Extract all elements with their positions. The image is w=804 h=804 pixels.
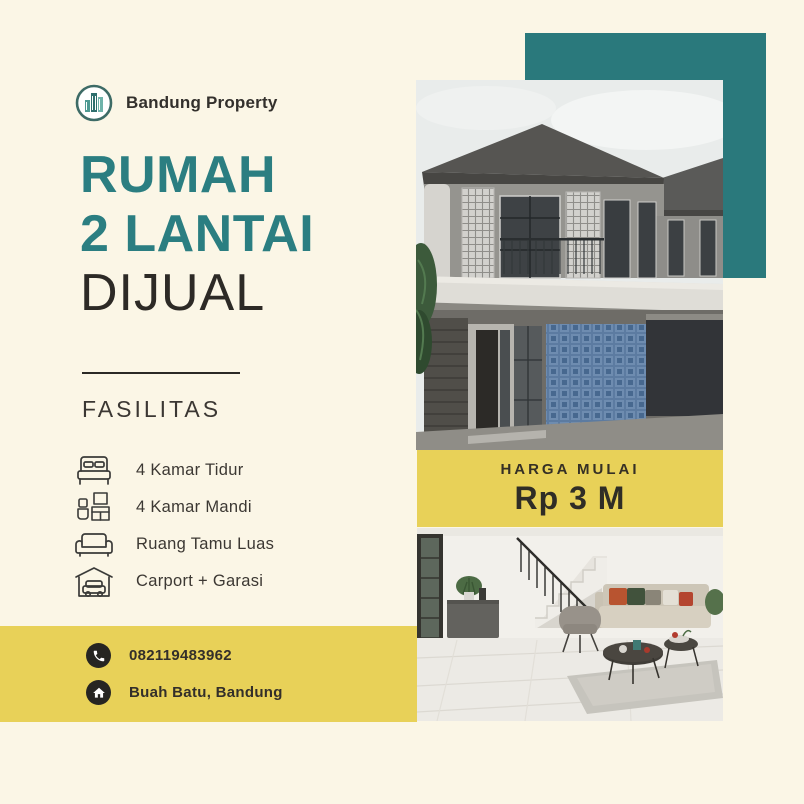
list-item: Ruang Tamu Luas [74, 526, 394, 563]
bathroom-icon [74, 491, 114, 525]
facility-label: Carport + Garasi [136, 572, 263, 591]
phone-number: 082119483962 [129, 647, 232, 664]
headline-line-1: RUMAH [80, 146, 314, 205]
home-icon [86, 680, 111, 705]
divider-line [82, 372, 240, 374]
contact-band: 082119483962 Buah Batu, Bandung [0, 626, 417, 722]
sofa-icon [74, 528, 114, 562]
phone-icon [86, 643, 111, 668]
facilities-list: 4 Kamar Tidur 4 Kamar Mandi [74, 452, 394, 600]
price-badge: HARGA MULAI Rp 3 M [417, 450, 723, 527]
phone-row: 082119483962 [86, 643, 232, 668]
list-item: 4 Kamar Tidur [74, 452, 394, 489]
facility-label: Ruang Tamu Luas [136, 535, 274, 554]
price-value: Rp 3 M [515, 480, 626, 517]
house-exterior-photo [416, 80, 723, 450]
living-room-interior-photo [417, 528, 723, 721]
list-item: Carport + Garasi [74, 563, 394, 600]
bed-icon [74, 454, 114, 488]
brand-name: Bandung Property [126, 93, 278, 113]
interior-illustration [417, 528, 723, 721]
headline-line-3: DIJUAL [80, 264, 314, 323]
location-text: Buah Batu, Bandung [129, 684, 283, 701]
location-row: Buah Batu, Bandung [86, 680, 283, 705]
buildings-logo-icon [75, 84, 113, 122]
house-exterior-illustration [416, 80, 723, 450]
price-label: HARGA MULAI [500, 461, 639, 478]
brand: Bandung Property [75, 84, 278, 122]
facility-label: 4 Kamar Mandi [136, 498, 252, 517]
headline-line-2: 2 LANTAI [80, 205, 314, 264]
flyer-page: HARGA MULAI Rp 3 M [0, 0, 804, 804]
list-item: 4 Kamar Mandi [74, 489, 394, 526]
garage-car-icon [74, 565, 114, 599]
facility-label: 4 Kamar Tidur [136, 461, 244, 480]
headline: RUMAH 2 LANTAI DIJUAL [80, 146, 314, 323]
facilities-heading: FASILITAS [82, 396, 221, 423]
